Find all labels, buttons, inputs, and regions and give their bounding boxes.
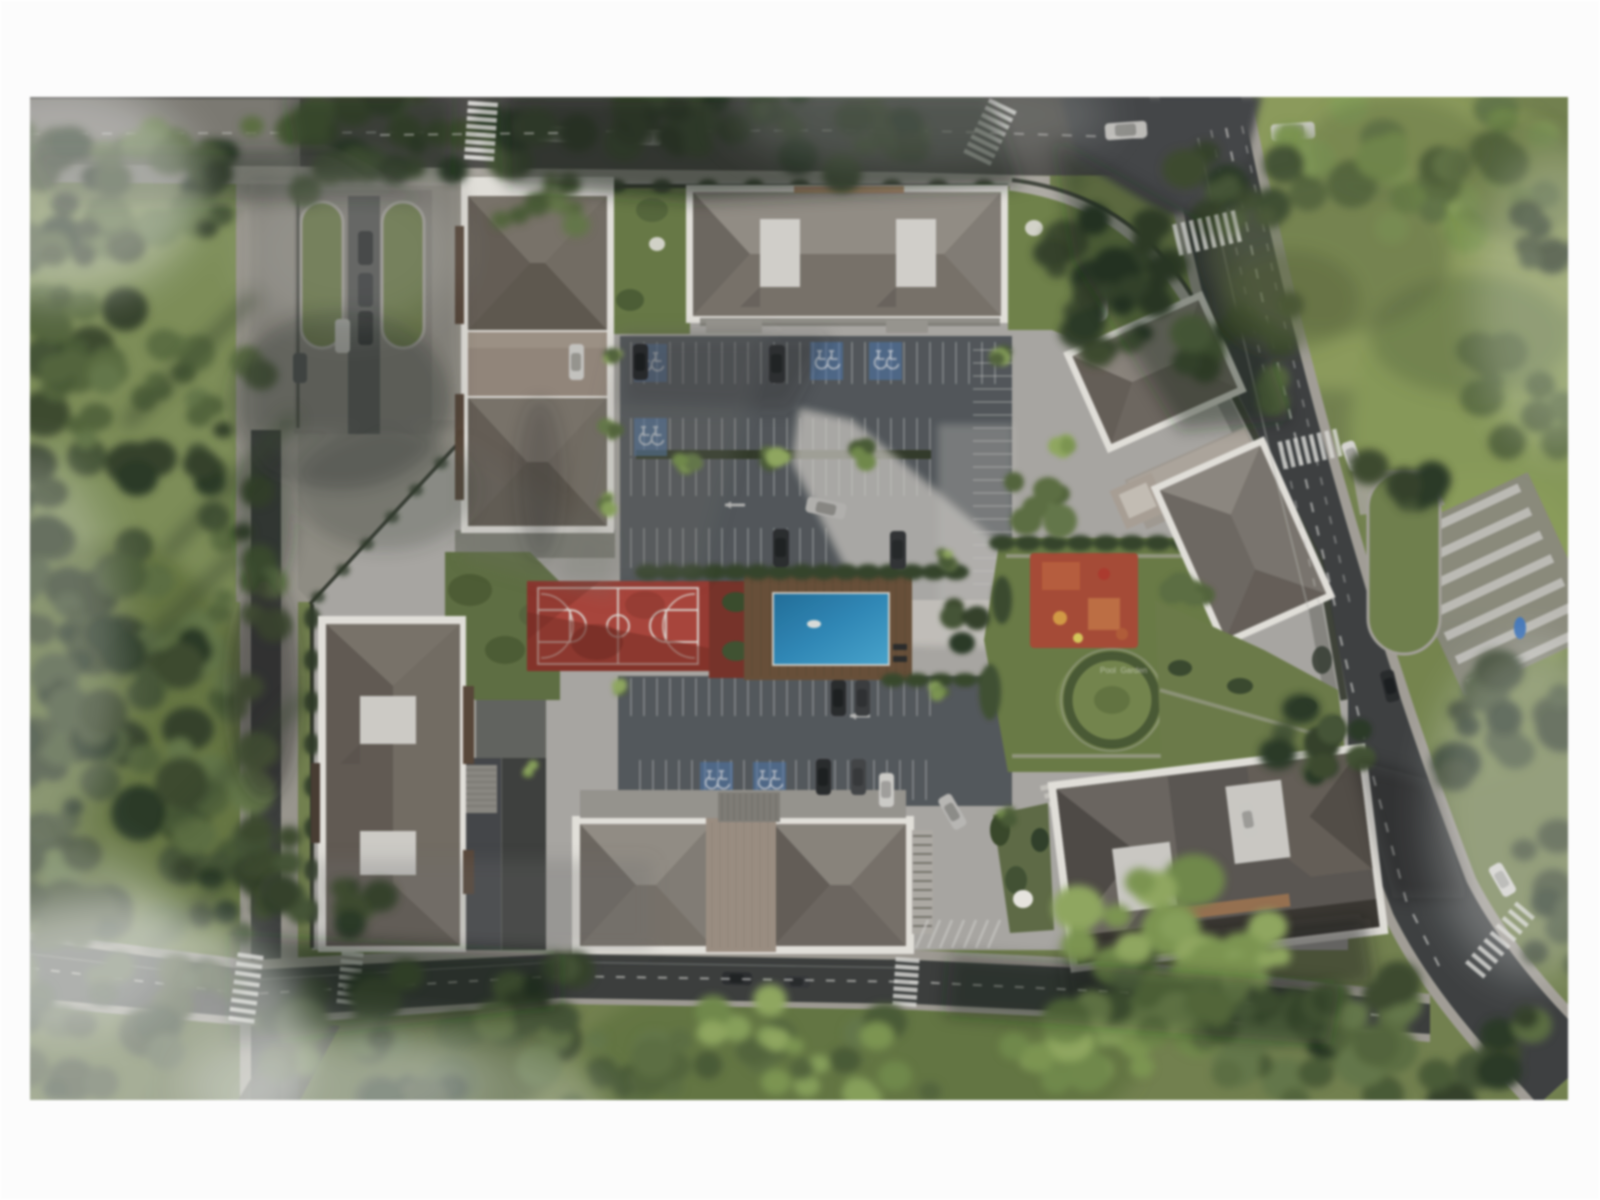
svg-text:Pool Garden: Pool Garden <box>1100 666 1147 675</box>
